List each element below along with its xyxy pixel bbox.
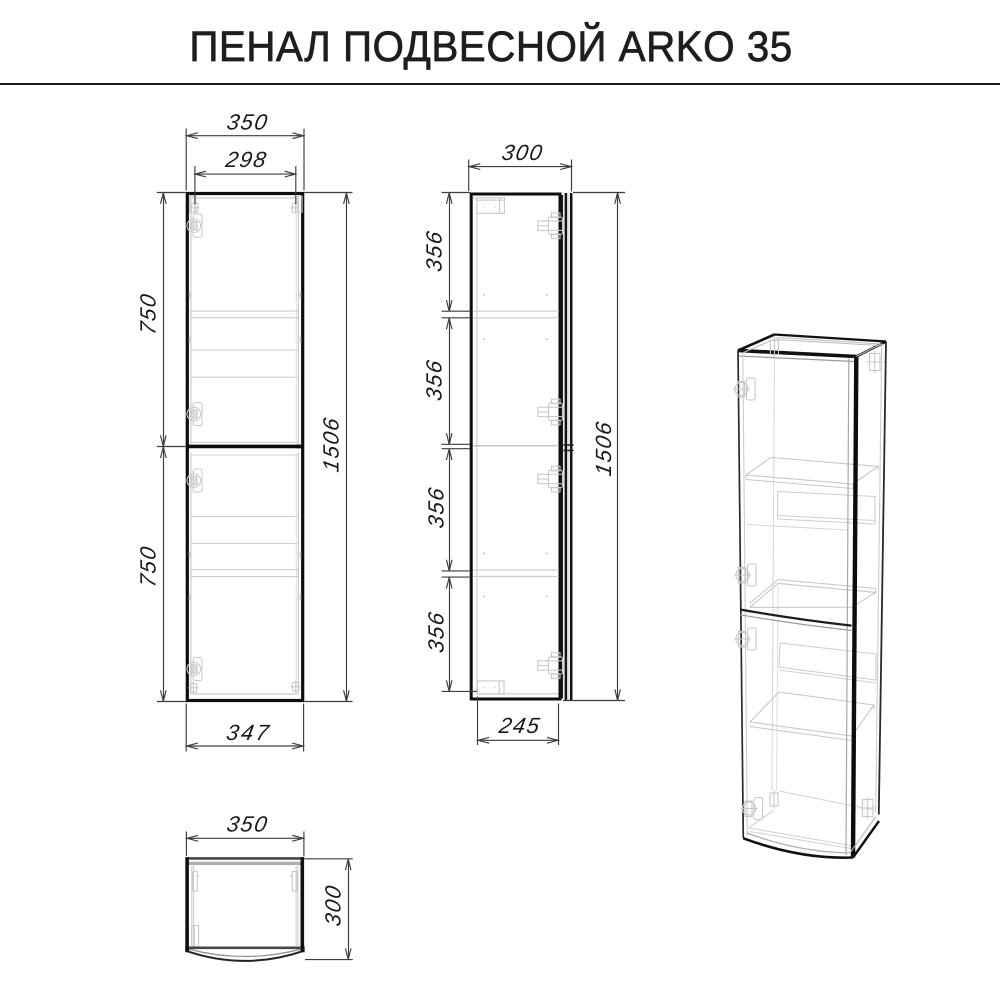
svg-text:350: 350 [225, 811, 271, 836]
svg-text:1506: 1506 [591, 419, 616, 478]
svg-text:245: 245 [496, 713, 543, 738]
svg-text:356: 356 [422, 357, 447, 403]
svg-text:750: 750 [136, 543, 161, 589]
svg-text:300: 300 [321, 882, 346, 928]
svg-text:300: 300 [500, 140, 546, 165]
svg-text:356: 356 [424, 484, 449, 530]
svg-text:356: 356 [422, 228, 447, 274]
svg-text:1506: 1506 [319, 415, 344, 474]
svg-text:750: 750 [136, 291, 161, 337]
svg-text:356: 356 [424, 609, 449, 655]
svg-text:298: 298 [223, 147, 270, 172]
svg-text:350: 350 [225, 110, 271, 135]
svg-text:347: 347 [225, 720, 274, 745]
